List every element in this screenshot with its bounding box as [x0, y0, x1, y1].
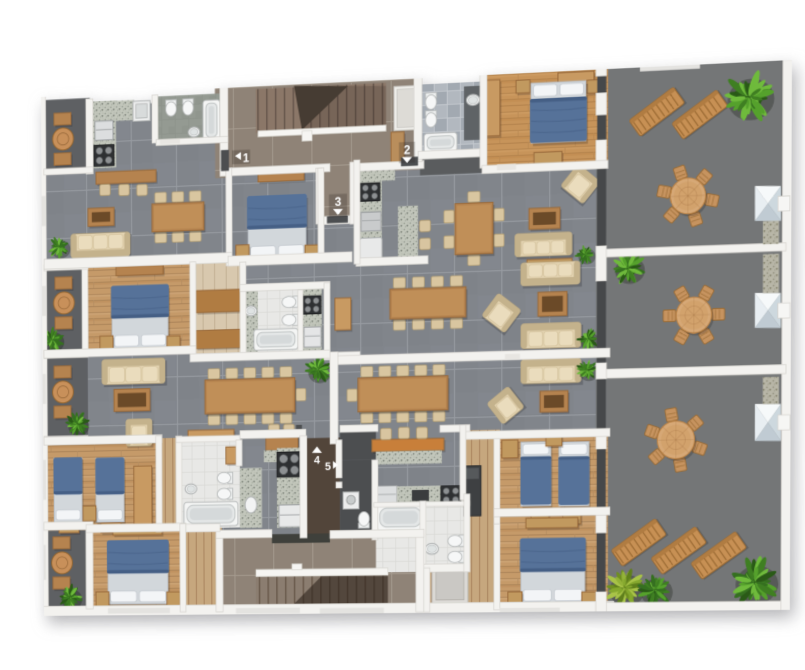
- svg-text:3: 3: [335, 195, 342, 209]
- svg-text:2: 2: [404, 143, 411, 157]
- svg-text:5: 5: [325, 460, 331, 473]
- svg-text:1: 1: [243, 151, 250, 165]
- svg-text:4: 4: [314, 454, 320, 467]
